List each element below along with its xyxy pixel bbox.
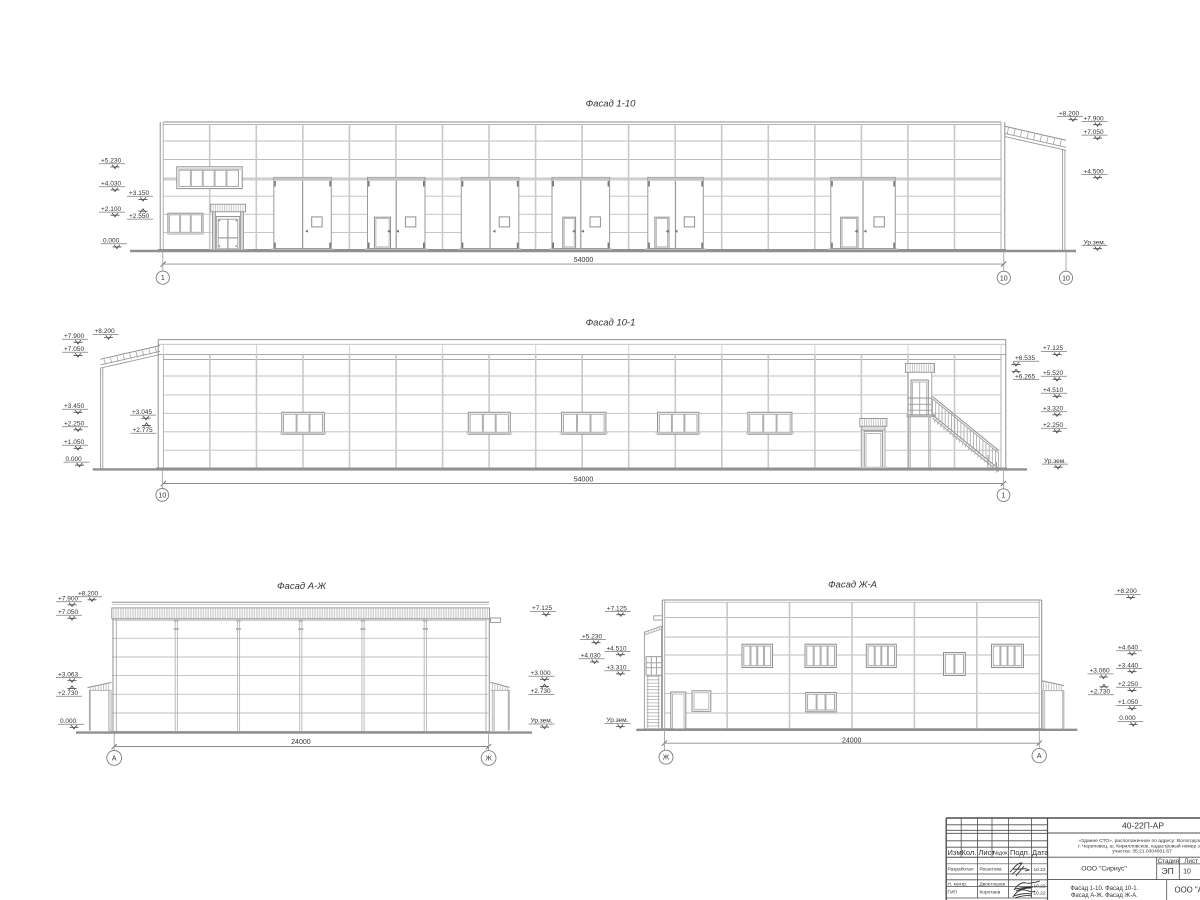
svg-text:Фасад А-Ж. Фасад Ж-А.: Фасад А-Ж. Фасад Ж-А. bbox=[1071, 893, 1138, 899]
svg-text:ЭП: ЭП bbox=[1161, 866, 1173, 876]
svg-text:10.22: 10.22 bbox=[1034, 867, 1046, 873]
svg-text:ГИП: ГИП bbox=[948, 889, 958, 895]
svg-text:№док.: №док. bbox=[993, 851, 1010, 857]
svg-text:Кол.: Кол. bbox=[962, 848, 977, 857]
svg-text:Фасад 1-10. Фасад 10-1.: Фасад 1-10. Фасад 10-1. bbox=[1070, 886, 1138, 892]
svg-text:ООО "А: ООО "А bbox=[1175, 886, 1200, 895]
svg-text:Фасад Ж-А: Фасад Ж-А bbox=[828, 580, 877, 591]
svg-text:1: 1 bbox=[1002, 493, 1006, 500]
svg-text:54000: 54000 bbox=[574, 476, 594, 483]
svg-text:ООО "Сириус": ООО "Сириус" bbox=[1081, 866, 1127, 873]
svg-text:10: 10 bbox=[158, 492, 166, 499]
svg-text:Дата: Дата bbox=[1032, 848, 1049, 857]
svg-text:Ж: Ж bbox=[485, 756, 492, 763]
svg-text:Ж: Ж bbox=[663, 755, 670, 762]
svg-text:10.22: 10.22 bbox=[1034, 890, 1046, 896]
svg-text:участка: 35:21.0304001:67: участка: 35:21.0304001:67 bbox=[1112, 849, 1172, 855]
svg-text:Коротаев: Коротаев bbox=[980, 889, 1001, 895]
svg-text:10: 10 bbox=[1000, 275, 1008, 282]
svg-text:А: А bbox=[112, 755, 117, 762]
svg-text:Решетова: Решетова bbox=[980, 866, 1002, 872]
svg-text:Лист: Лист bbox=[1184, 858, 1198, 865]
svg-text:Стадия: Стадия bbox=[1158, 858, 1179, 865]
svg-text:Фасад А-Ж: Фасад А-Ж bbox=[277, 581, 327, 592]
svg-text:Разработал: Разработал bbox=[948, 866, 974, 872]
svg-text:«Здание СТО», расположенное по: «Здание СТО», расположенное по адресу: В… bbox=[1078, 838, 1200, 844]
svg-text:24000: 24000 bbox=[291, 739, 311, 746]
svg-text:1: 1 bbox=[161, 275, 165, 282]
svg-text:10: 10 bbox=[1062, 275, 1070, 282]
svg-text:Двоеглазов: Двоеглазов bbox=[980, 881, 1006, 887]
svg-text:54000: 54000 bbox=[574, 257, 594, 264]
svg-text:Фасад 10-1: Фасад 10-1 bbox=[586, 318, 636, 329]
svg-text:Н. контр.: Н. контр. bbox=[948, 881, 968, 887]
svg-text:г. Череповец, ш. Кирилловское,: г. Череповец, ш. Кирилловское, кадастров… bbox=[1078, 842, 1200, 849]
svg-text:Подп.: Подп. bbox=[1010, 848, 1030, 857]
svg-text:40-22П-АР: 40-22П-АР bbox=[1122, 820, 1164, 830]
svg-text:10: 10 bbox=[1183, 869, 1191, 876]
svg-text:24000: 24000 bbox=[842, 737, 862, 744]
svg-text:А: А bbox=[1037, 753, 1042, 760]
svg-text:10.22: 10.22 bbox=[1034, 883, 1046, 889]
svg-text:Фасад 1-10: Фасад 1-10 bbox=[586, 99, 636, 110]
